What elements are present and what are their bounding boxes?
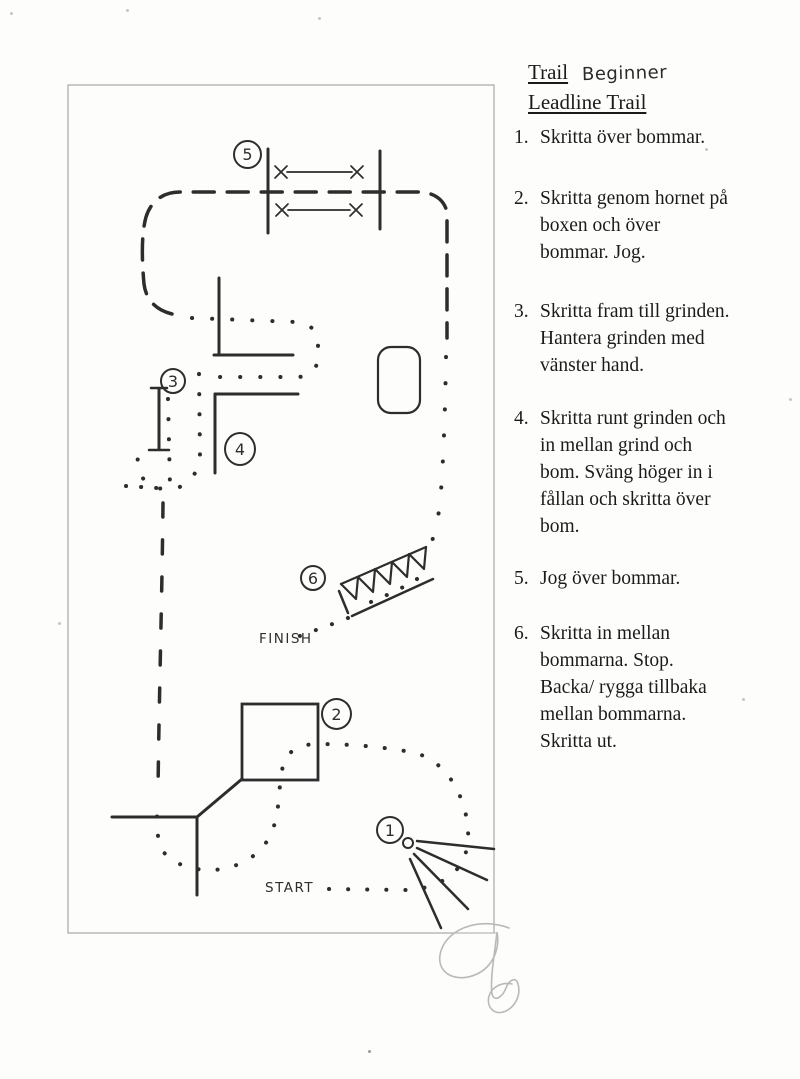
scanned-trail-course-page: 1 2 3 4 5 6 START FINISH TrailBeginner L… bbox=[0, 0, 800, 1079]
obstacle-3-gate bbox=[149, 388, 169, 450]
course-type-title: Trail bbox=[528, 60, 568, 84]
scan-speck bbox=[10, 12, 13, 15]
instruction-item: 1. Skritta över bommar. bbox=[514, 124, 782, 151]
instruction-item: 2. Skritta genom hornet på boxen och öve… bbox=[514, 185, 782, 266]
instruction-text: Skritta över bommar. bbox=[540, 124, 782, 151]
instruction-number: 1. bbox=[514, 124, 540, 151]
obstacle-marker-3: 3 bbox=[160, 368, 186, 394]
barrel bbox=[378, 347, 420, 413]
finish-label: FINISH bbox=[259, 631, 313, 647]
obstacle-marker-6: 6 bbox=[300, 565, 326, 591]
x-mark-icon bbox=[275, 166, 287, 178]
obstacle-marker-1: 1 bbox=[376, 816, 404, 844]
scan-speck bbox=[789, 398, 792, 401]
instruction-text: Jog över bommar. bbox=[540, 565, 782, 592]
instruction-item: 4. Skritta runt grinden och in mellan gr… bbox=[514, 405, 782, 540]
corner-rails bbox=[112, 779, 242, 895]
obstacle-marker-5: 5 bbox=[233, 140, 262, 169]
instruction-number: 5. bbox=[514, 565, 540, 592]
instruction-text: Skritta in mellan bommarna. Stop. Backa/… bbox=[540, 620, 782, 755]
instruction-number: 4. bbox=[514, 405, 540, 540]
instruction-text: Skritta runt grinden och in mellan grind… bbox=[540, 405, 782, 540]
instruction-number: 2. bbox=[514, 185, 540, 266]
level-title-handwritten: Beginner bbox=[582, 59, 668, 89]
instruction-list: 1. Skritta över bommar. 2. Skritta genom… bbox=[514, 124, 782, 755]
course-subtitle: Leadline Trail bbox=[528, 90, 646, 114]
obstacle-marker-4: 4 bbox=[224, 432, 256, 466]
x-mark-icon bbox=[350, 204, 362, 216]
instruction-text: Skritta genom hornet på boxen och över b… bbox=[540, 185, 782, 266]
start-label: START bbox=[265, 880, 314, 896]
instruction-item: 3. Skritta fram till grinden. Hantera gr… bbox=[514, 298, 782, 379]
instruction-number: 6. bbox=[514, 620, 540, 755]
instruction-item: 6. Skritta in mellan bommarna. Stop. Bac… bbox=[514, 620, 782, 755]
instruction-text: Skritta fram till grinden. Hantera grind… bbox=[540, 298, 782, 379]
jog-path-dashed bbox=[142, 192, 447, 792]
title-block: TrailBeginner Leadline Trail bbox=[528, 58, 667, 116]
obstacle-1-fan-poles bbox=[403, 838, 494, 928]
x-mark-icon bbox=[276, 204, 288, 216]
instruction-item: 5. Jog över bommar. bbox=[514, 565, 782, 592]
walk-path-dotted bbox=[126, 318, 468, 890]
scan-speck bbox=[58, 622, 61, 625]
scan-speck bbox=[368, 1050, 371, 1053]
obstacle-2-box bbox=[242, 704, 318, 780]
scan-speck bbox=[126, 9, 129, 12]
scan-speck bbox=[318, 17, 321, 20]
obstacle-marker-2: 2 bbox=[321, 698, 352, 730]
instruction-number: 3. bbox=[514, 298, 540, 379]
signature bbox=[440, 924, 519, 1013]
obstacle-6-zigzag-chute bbox=[339, 547, 433, 616]
